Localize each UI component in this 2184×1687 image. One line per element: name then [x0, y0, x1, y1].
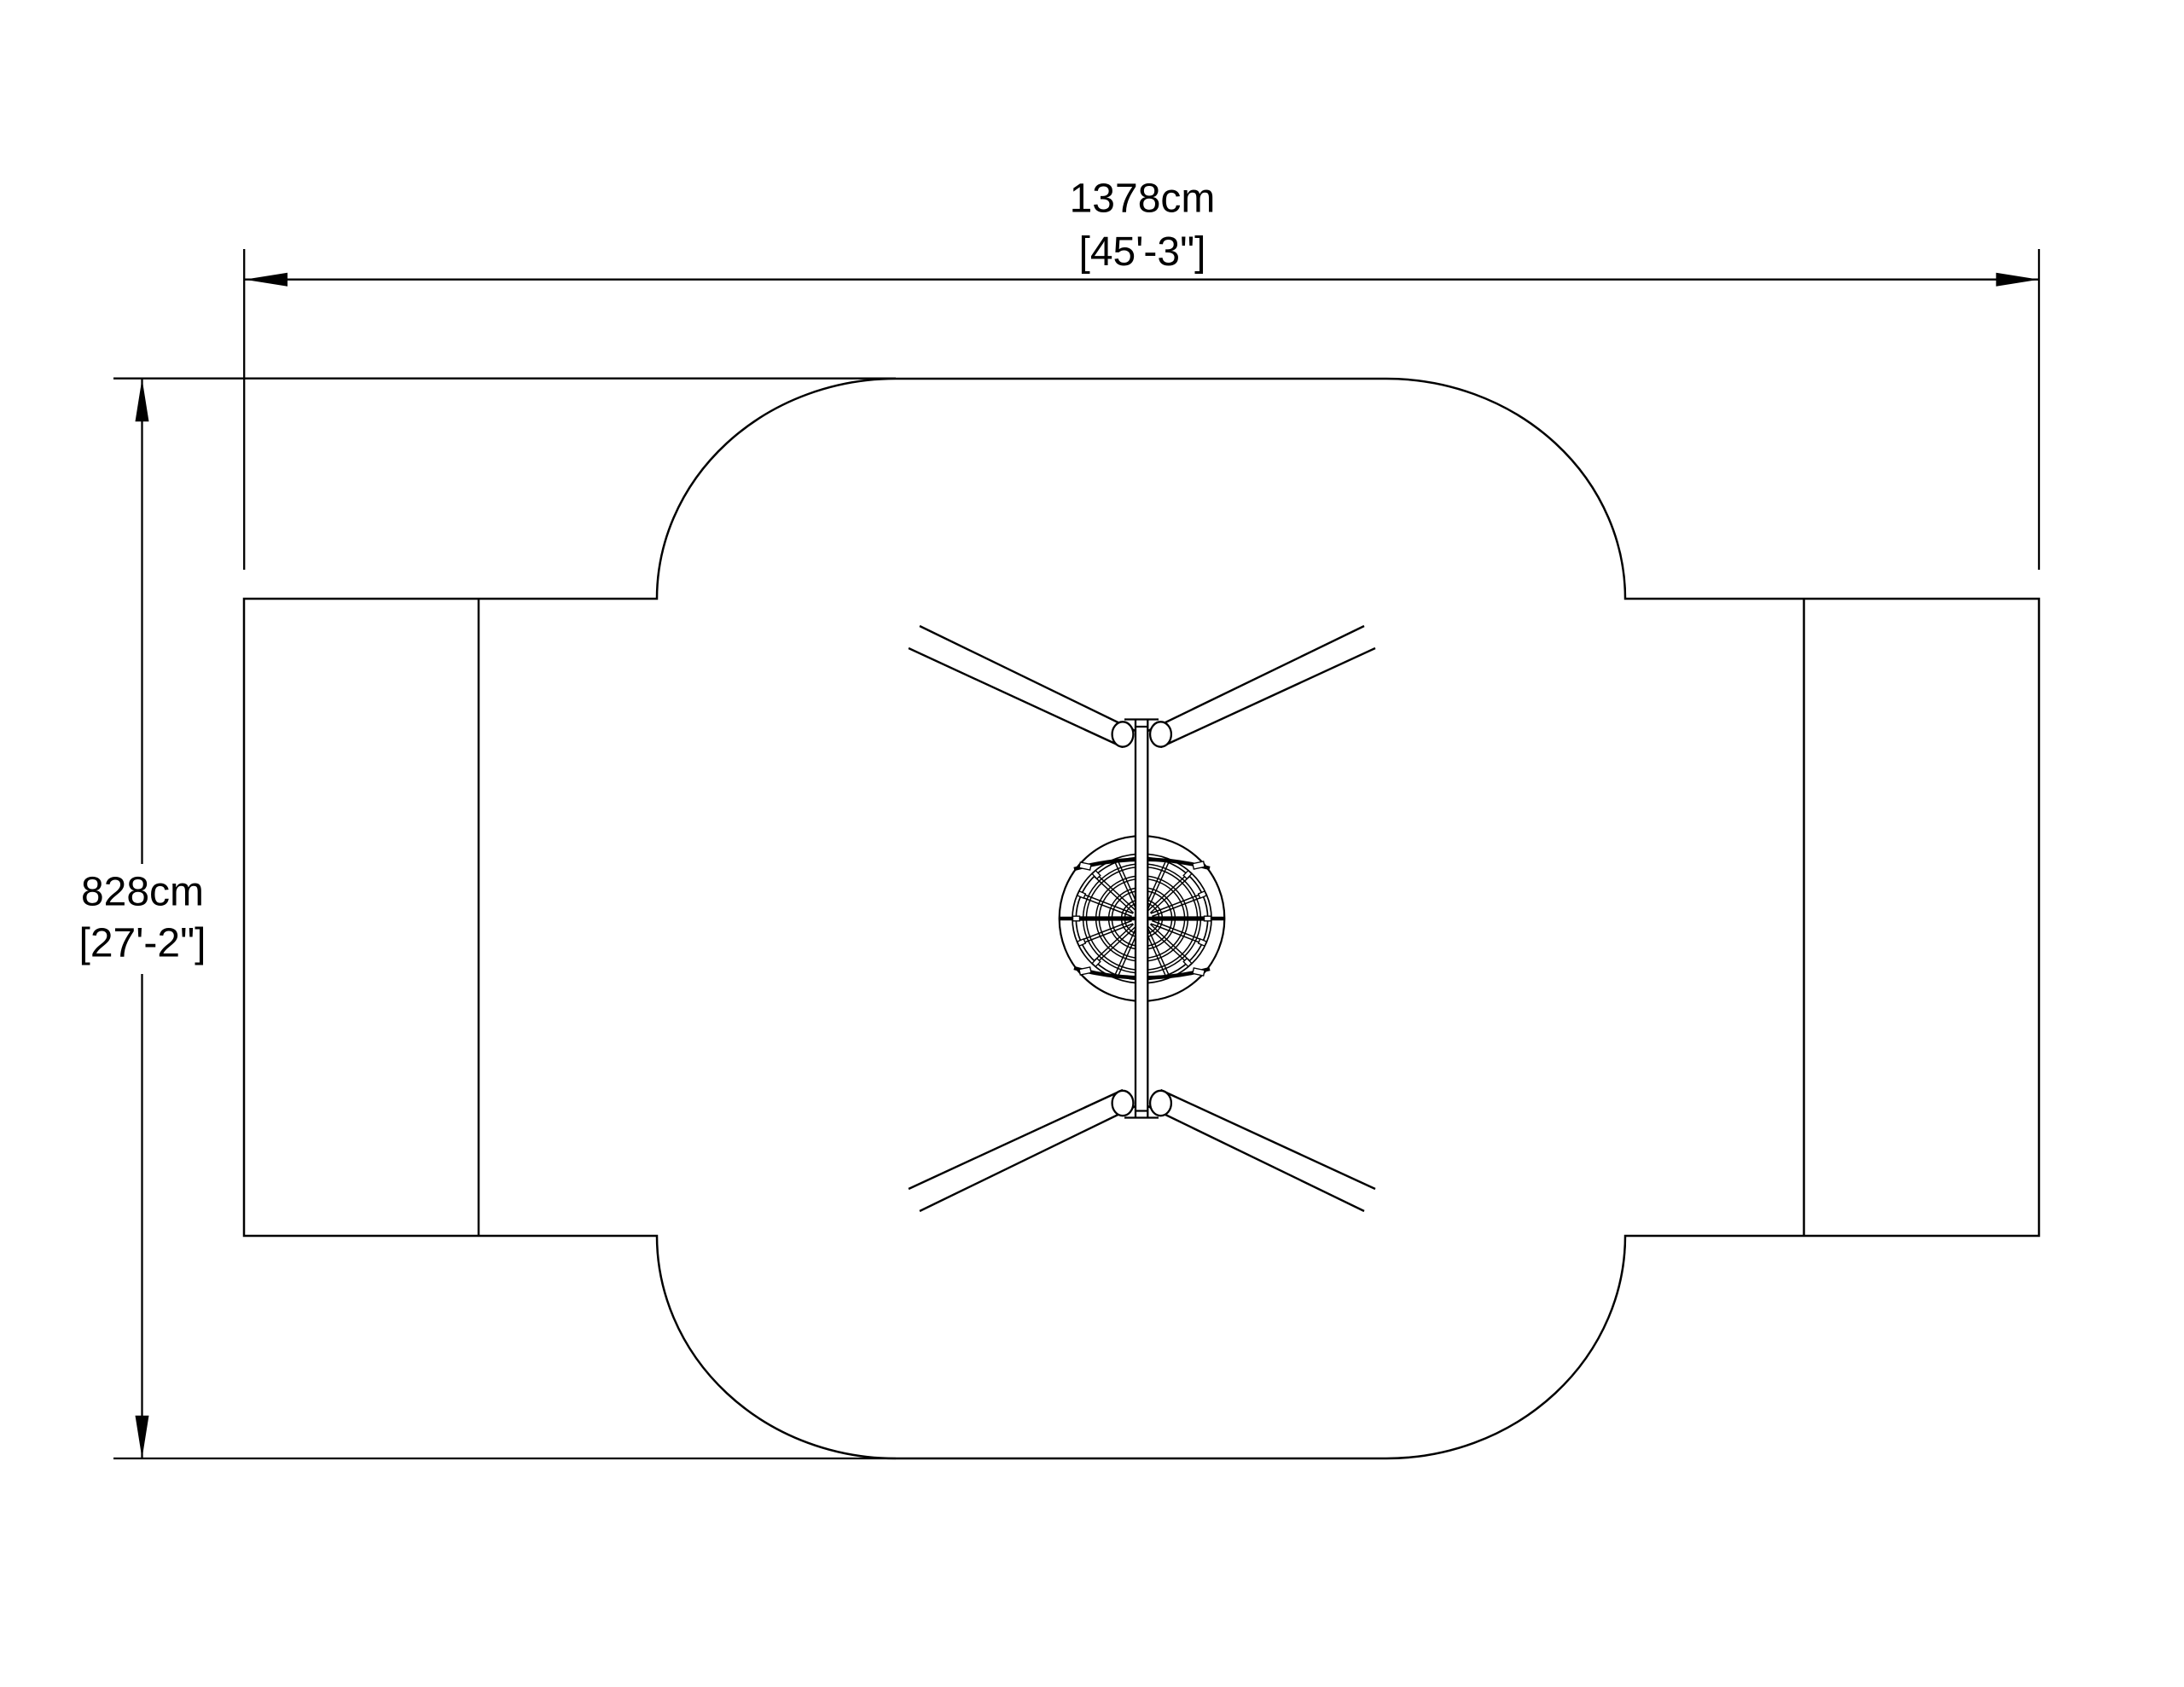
svg-text:[27'-2"]: [27'-2"] [79, 921, 206, 966]
svg-text:[45'-3"]: [45'-3"] [1079, 229, 1206, 275]
svg-text:828cm: 828cm [81, 870, 204, 915]
svg-text:1378cm: 1378cm [1070, 177, 1216, 222]
